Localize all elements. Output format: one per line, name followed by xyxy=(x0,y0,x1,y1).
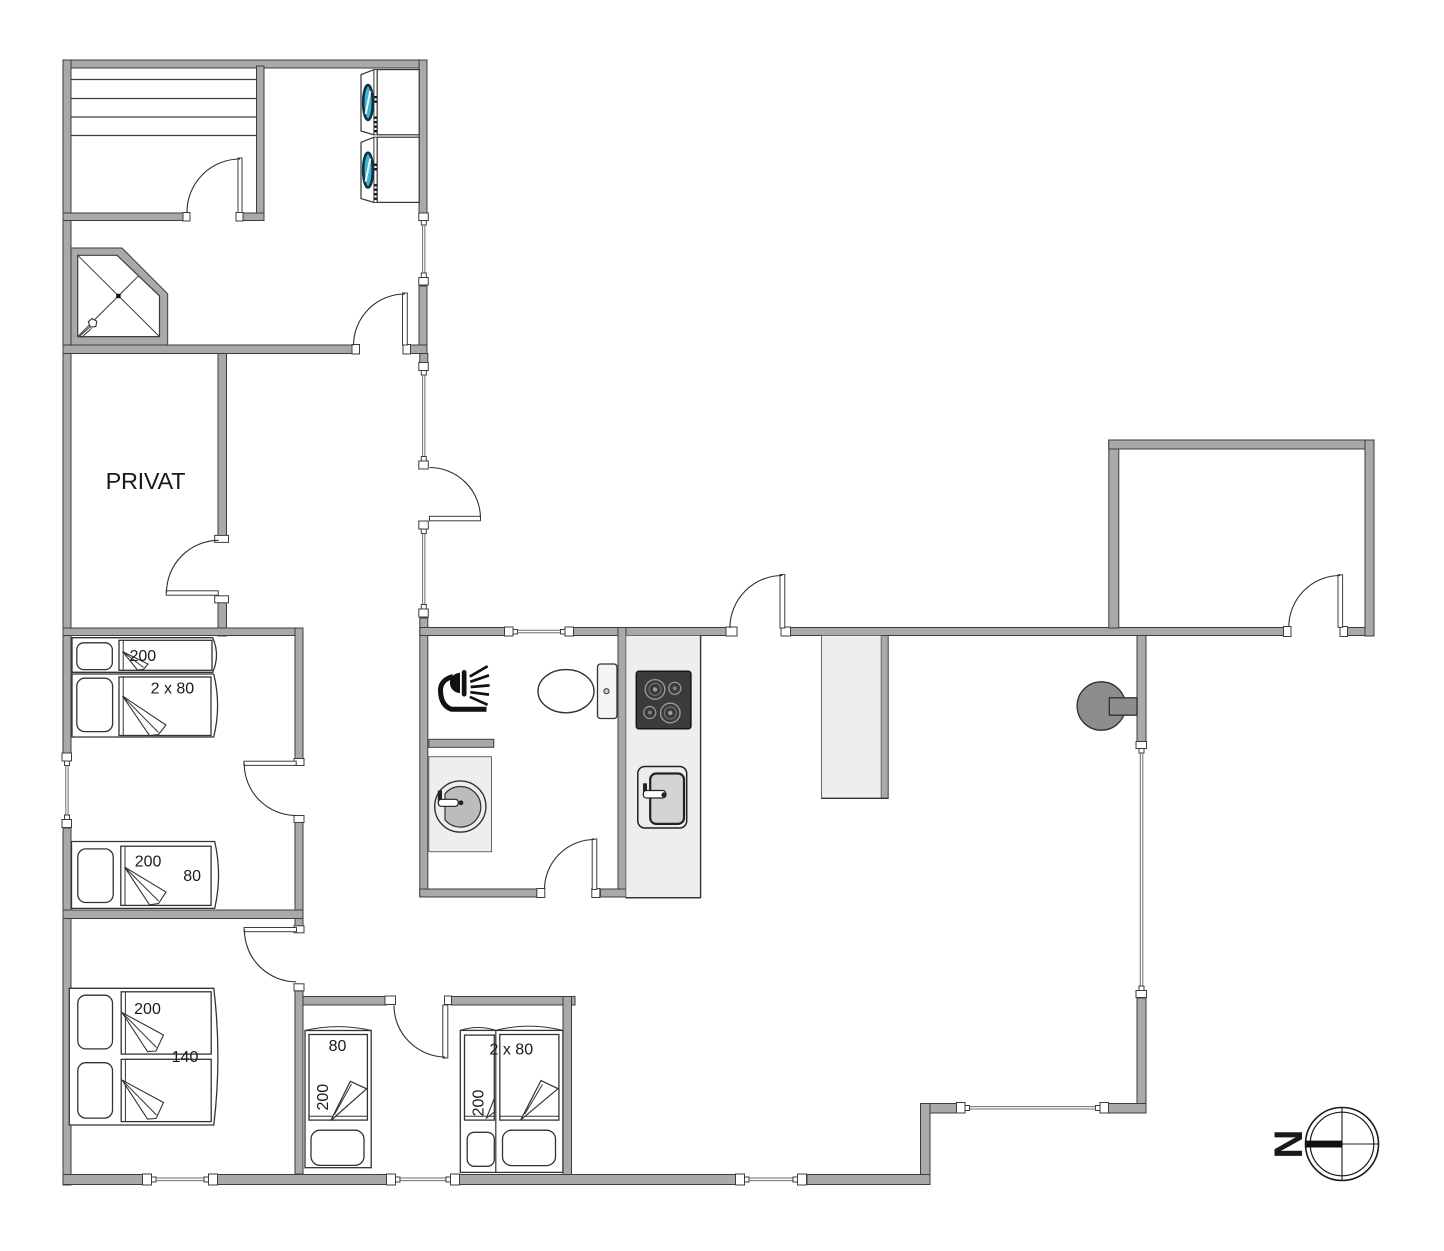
svg-text:140: 140 xyxy=(172,1049,199,1066)
svg-text:200: 200 xyxy=(129,648,156,665)
svg-text:200: 200 xyxy=(315,1084,332,1111)
svg-text:80: 80 xyxy=(183,868,201,885)
svg-text:200: 200 xyxy=(135,854,162,871)
svg-text:2 x 80: 2 x 80 xyxy=(151,681,195,698)
svg-text:200: 200 xyxy=(471,1090,488,1117)
svg-text:PRIVAT: PRIVAT xyxy=(106,468,186,494)
svg-text:200: 200 xyxy=(134,1001,161,1018)
svg-text:80: 80 xyxy=(329,1038,347,1055)
svg-text:N: N xyxy=(1267,1130,1311,1159)
svg-text:2 x 80: 2 x 80 xyxy=(490,1042,534,1059)
